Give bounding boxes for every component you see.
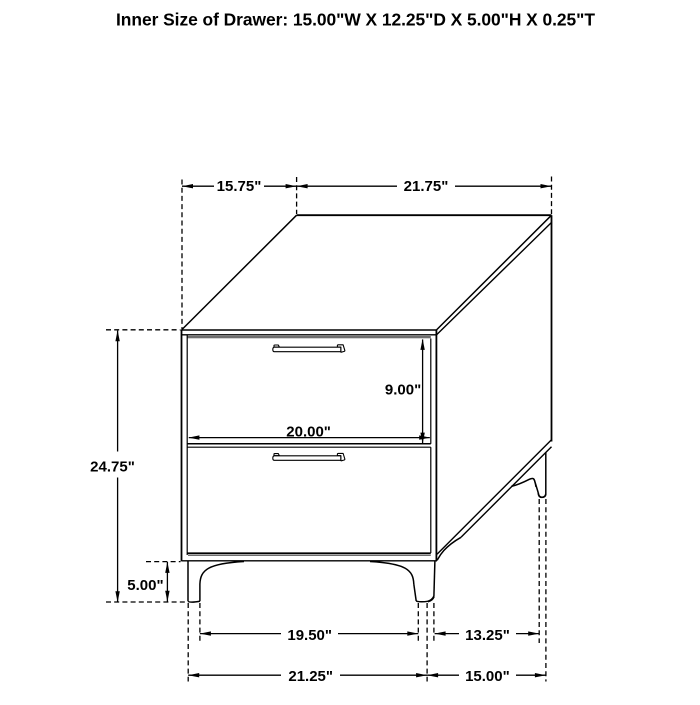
- svg-text:9.00": 9.00": [385, 381, 421, 398]
- svg-text:21.75": 21.75": [404, 178, 449, 195]
- svg-text:21.25": 21.25": [288, 668, 333, 685]
- svg-text:13.25": 13.25": [465, 627, 510, 644]
- svg-text:Inner Size of Drawer: 15.00"W: Inner Size of Drawer: 15.00"W X 12.25"D …: [116, 9, 595, 29]
- svg-text:20.00": 20.00": [286, 424, 331, 441]
- svg-text:15.00": 15.00": [465, 668, 510, 685]
- svg-text:19.50": 19.50": [287, 627, 332, 644]
- svg-text:24.75": 24.75": [90, 458, 135, 475]
- svg-text:5.00": 5.00": [127, 577, 163, 594]
- svg-text:15.75": 15.75": [217, 178, 262, 195]
